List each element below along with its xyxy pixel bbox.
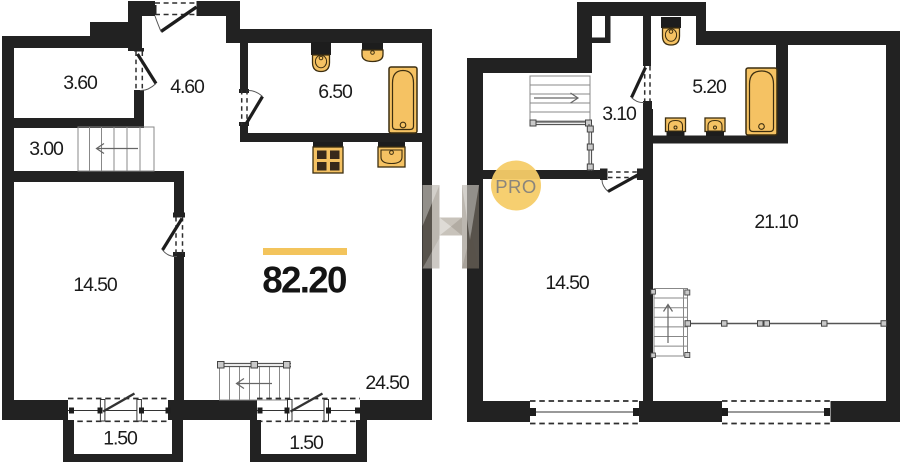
svg-text:3.60: 3.60 <box>63 72 98 94</box>
svg-text:3.10: 3.10 <box>602 103 637 125</box>
svg-text:14.50: 14.50 <box>545 272 590 294</box>
svg-text:14.50: 14.50 <box>73 274 118 296</box>
svg-text:21.10: 21.10 <box>754 211 799 233</box>
svg-text:PRO: PRO <box>495 176 537 197</box>
svg-text:24.50: 24.50 <box>365 372 410 394</box>
svg-text:6.50: 6.50 <box>318 81 353 103</box>
svg-text:4.60: 4.60 <box>170 76 205 98</box>
svg-text:5.20: 5.20 <box>692 76 727 98</box>
svg-text:1.50: 1.50 <box>289 432 324 454</box>
svg-text:82.20: 82.20 <box>262 260 346 301</box>
svg-text:3.00: 3.00 <box>29 138 64 160</box>
svg-text:1.50: 1.50 <box>103 428 138 450</box>
